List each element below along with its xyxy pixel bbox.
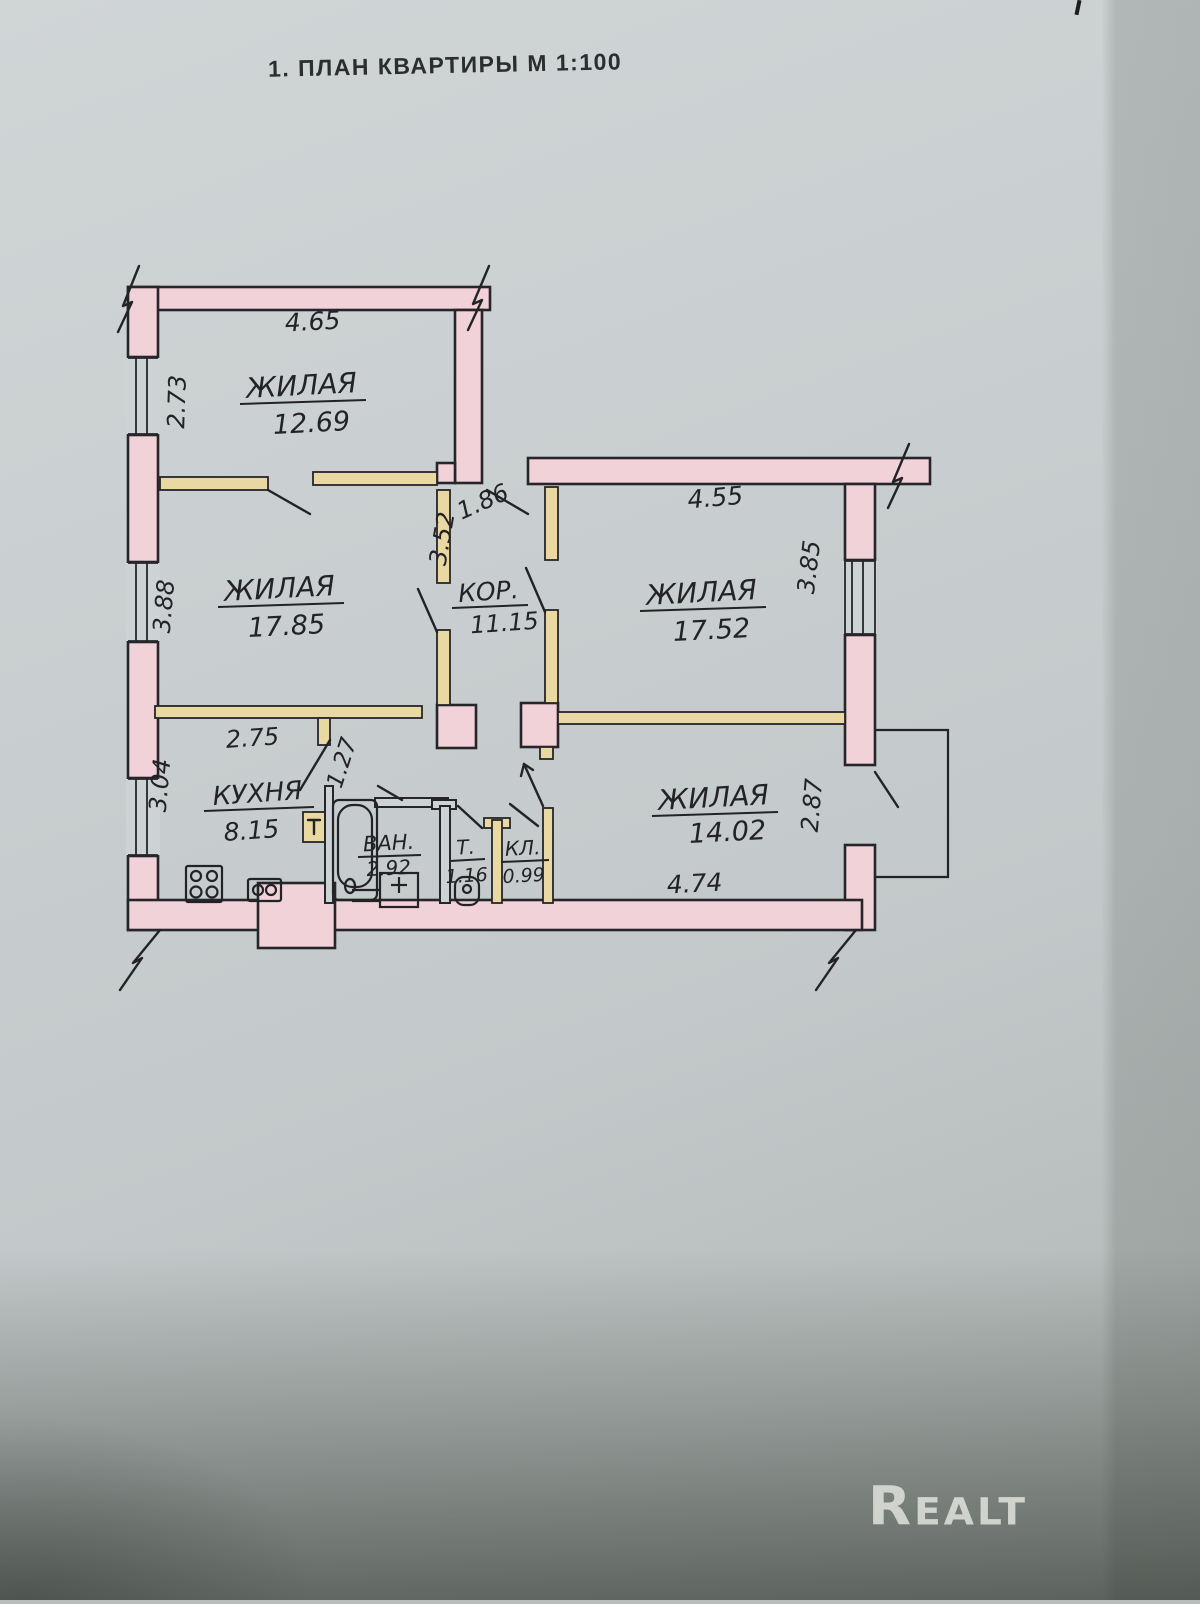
corridor-wall-right-upper xyxy=(545,487,558,560)
stove-icon xyxy=(186,866,222,902)
toilet-name: Т. xyxy=(456,835,476,860)
room1-name: ЖИЛАЯ xyxy=(243,366,357,405)
door-room1-room2 xyxy=(268,490,310,514)
wall-right-seg2 xyxy=(845,635,875,765)
partition-room2-kitchen xyxy=(155,706,422,718)
closet-right-wall xyxy=(543,808,553,903)
dim-room3-depth: 3.85 xyxy=(792,539,826,595)
corridor-wall-left-lower xyxy=(437,630,450,705)
room2-area: 17.85 xyxy=(247,609,326,644)
balcony-outline xyxy=(875,730,948,877)
room4-door-stub xyxy=(540,747,553,759)
partition-room1-room2-left xyxy=(160,477,268,490)
window-room1 xyxy=(126,358,160,434)
corridor-pier-right xyxy=(521,703,558,747)
door-closet xyxy=(510,804,538,826)
floor-plan-photo: 1. ПЛАН КВАРТИРЫ М 1:100 xyxy=(0,0,1200,1600)
door-corridor-room2 xyxy=(418,589,437,632)
door-balcony xyxy=(875,772,898,807)
dim-room3-width: 4.55 xyxy=(686,481,744,515)
corridor-wall-right-lower xyxy=(545,610,558,703)
dim-corridor-width: 1.86 xyxy=(453,478,513,525)
realt-watermark: Realt xyxy=(868,1475,1028,1537)
room3-name: ЖИЛАЯ xyxy=(643,573,757,612)
fixtures xyxy=(186,800,479,907)
door-room4-arrow xyxy=(521,764,543,806)
room3-area: 17.52 xyxy=(672,613,751,648)
room1-area: 12.69 xyxy=(272,406,351,441)
room4-area: 14.02 xyxy=(688,815,767,850)
dim-room1-depth: 2.73 xyxy=(162,375,192,429)
wall-bottom xyxy=(128,900,862,930)
window-room3 xyxy=(843,561,877,634)
break-mark-bottom-right xyxy=(816,930,856,990)
room4-name: ЖИЛАЯ xyxy=(655,778,769,817)
dim-room4-width: 4.74 xyxy=(666,868,723,900)
wall-room3-top xyxy=(528,458,930,484)
kitchen-area: 8.15 xyxy=(223,814,281,847)
floor-plan-drawing: ЖИЛАЯ 12.69 ЖИЛАЯ 17.85 КОР. 11.15 ЖИЛАЯ… xyxy=(0,0,1200,1600)
room-labels: ЖИЛАЯ 12.69 ЖИЛАЯ 17.85 КОР. 11.15 ЖИЛАЯ… xyxy=(204,366,778,888)
room2-name: ЖИЛАЯ xyxy=(221,569,335,608)
dim-room4-depth: 2.87 xyxy=(796,777,829,833)
corridor-name: КОР. xyxy=(457,575,519,608)
toilet-closet-divider xyxy=(492,820,502,903)
wall-room1-right xyxy=(455,310,482,483)
door-toilet xyxy=(458,806,482,828)
wall-right-seg1 xyxy=(845,484,875,560)
wall-left-seg2 xyxy=(128,435,158,562)
partition-room1-room2-right xyxy=(313,472,437,485)
kitchen-name: КУХНЯ xyxy=(212,776,304,812)
kitchen-bathroom-wall xyxy=(325,786,333,903)
wall-left-seg1 xyxy=(128,287,158,357)
dim-kitchen-width: 2.75 xyxy=(225,722,280,754)
bathroom-area: 2.92 xyxy=(366,855,412,881)
dim-corridor-depth: 3.52 xyxy=(424,510,461,567)
wall-left-seg3 xyxy=(128,642,158,778)
door-corridor-room3 xyxy=(526,568,545,612)
dim-room1-width: 4.65 xyxy=(284,306,341,338)
wall-bottom-pier xyxy=(258,883,335,948)
bathroom-toilet-wall xyxy=(440,806,450,903)
dim-kitchen-depth: 3.04 xyxy=(144,757,177,813)
closet-area: 0.99 xyxy=(502,864,545,888)
break-mark-bottom-left xyxy=(120,930,160,990)
bathroom-name: ВАН. xyxy=(362,830,414,857)
closet-name: КЛ. xyxy=(504,835,541,861)
toilet-area: 1.16 xyxy=(445,864,488,888)
dim-room2-depth: 3.88 xyxy=(148,578,181,634)
wall-room1-right-foot xyxy=(437,463,455,483)
partition-room3-room4 xyxy=(558,712,845,724)
corridor-pier-left xyxy=(437,705,476,748)
corridor-area: 11.15 xyxy=(469,607,540,640)
